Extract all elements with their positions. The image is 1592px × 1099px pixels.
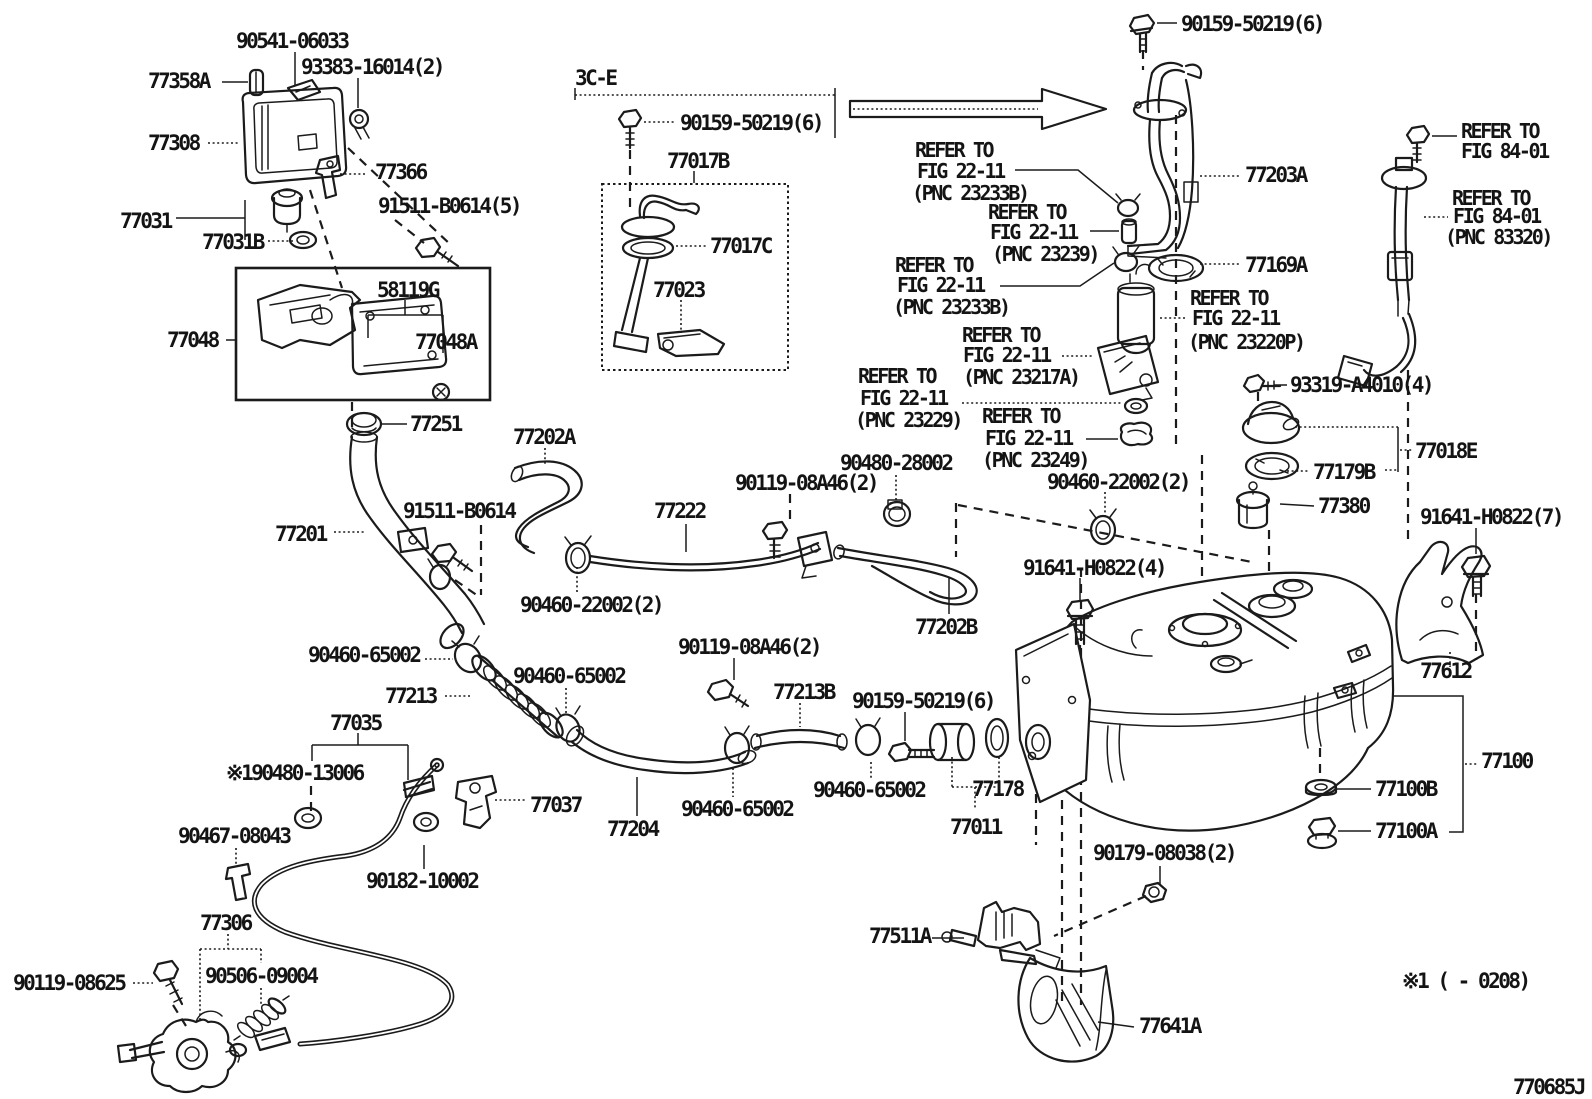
part-grommet-23229	[1125, 399, 1147, 413]
label-77213B: 77213B	[773, 680, 836, 704]
label-77018E: 77018E	[1415, 439, 1478, 463]
label-77048A: 77048A	[415, 330, 479, 354]
label-77366: 77366	[375, 160, 428, 184]
part-grommet-23249	[1121, 423, 1152, 445]
label-77031: 77031	[120, 209, 173, 233]
part-90179-nut	[1143, 883, 1166, 902]
part-77222-pipe	[590, 532, 832, 578]
label-77100B: 77100B	[1375, 777, 1438, 801]
label-77178: 77178	[972, 777, 1025, 801]
label-77511A: 77511A	[869, 924, 933, 948]
label-90460-65002-1: 90460-65002	[308, 643, 420, 667]
label-90182-10002: 90182-10002	[366, 869, 478, 893]
label-77017B: 77017B	[667, 149, 730, 173]
label-77179B: 77179B	[1313, 460, 1376, 484]
label-90460-65002-4: 90460-65002	[813, 778, 925, 802]
label-77201: 77201	[275, 522, 328, 546]
part-90159-bolt-top	[1130, 15, 1154, 52]
label-77641A: 77641A	[1139, 1014, 1203, 1038]
label-77204: 77204	[607, 817, 660, 841]
label-77612: 77612	[1420, 659, 1472, 683]
ref5-fig-22-11: FIG 22-11	[860, 386, 949, 410]
label-90541-06033: 90541-06033	[236, 29, 349, 53]
label-77251: 77251	[410, 412, 463, 436]
label-93319-A4010: 93319-A4010(4)	[1290, 373, 1432, 397]
label-90119-08A46-upper: 90119-08A46(2)	[735, 471, 877, 495]
label-77031B: 77031B	[202, 230, 265, 254]
label-90159-50219-bottom: 90159-50219(6)	[852, 689, 994, 713]
ref3-pnc-23233B: (PNC 23233B)	[893, 295, 1009, 319]
label-91641-H0822-4: 91641-H0822(4)	[1023, 556, 1165, 580]
label-77222: 77222	[654, 499, 706, 523]
label-section-3c-e: 3C-E	[575, 66, 617, 90]
part-90119-08625-bolt	[154, 961, 182, 1004]
label-91511-B0614-5: 91511-B0614(5)	[378, 194, 520, 218]
part-90119-bolt-upper	[763, 522, 787, 558]
label-77308: 77308	[148, 131, 201, 155]
label-90119-08A46-lower: 90119-08A46(2)	[678, 635, 820, 659]
label-90506-09004: 90506-09004	[205, 964, 318, 988]
group-box-77017B	[602, 184, 788, 370]
label-90119-08625: 90119-08625	[13, 971, 126, 995]
label-77213: 77213	[385, 684, 438, 708]
ref5-pnc-23229: (PNC 23229)	[855, 408, 961, 432]
ref2-pnc-23239: (PNC 23239)	[992, 242, 1098, 266]
label-90460-65002-2: 90460-65002	[513, 664, 625, 688]
ref6-fig-22-11: FIG 22-11	[985, 426, 1074, 450]
label-applicability-note: ※1 ( - 0208)	[1402, 969, 1529, 993]
direction-arrow	[850, 89, 1106, 129]
ref4-pnc-23217A: (PNC 23217A)	[963, 365, 1079, 389]
label-figure-code: 770685J	[1513, 1075, 1585, 1099]
part-77048-housing	[258, 285, 360, 348]
part-90460-65002-clamp-3	[725, 726, 749, 763]
label-90460-22002-right: 90460-22002(2)	[1047, 470, 1189, 494]
label-77023: 77023	[653, 278, 706, 302]
part-90119-bolt-lower	[708, 680, 748, 707]
ref2-fig-22-11: FIG 22-11	[990, 220, 1079, 244]
label-77011: 77011	[950, 815, 1003, 839]
label-77169A: 77169A	[1245, 253, 1309, 277]
part-90182-grommet	[414, 813, 438, 831]
label-77035: 77035	[330, 711, 383, 735]
part-fuel-pump-23220P	[1118, 264, 1154, 353]
part-77612-bracket	[1396, 542, 1483, 663]
label-77202A: 77202A	[513, 425, 577, 449]
leader-lines-dotted	[133, 95, 1478, 1020]
part-77017B-sender	[614, 110, 699, 352]
part-77213B-hose	[751, 730, 847, 750]
part-90480-13006-grommet	[295, 808, 321, 828]
label-77100: 77100	[1481, 749, 1534, 773]
part-90460-65002-clamp-4	[856, 718, 880, 755]
part-77178-seal-set	[930, 719, 1008, 760]
label-77048: 77048	[167, 328, 220, 352]
label-77358A: 77358A	[148, 69, 212, 93]
part-90460-22002-clamp-left	[565, 536, 591, 573]
label-77306: 77306	[200, 911, 253, 935]
label-90480-13006: ※190480-13006	[226, 761, 365, 785]
label-77037: 77037	[530, 793, 583, 817]
part-90460-22002-clamp-right	[1090, 509, 1116, 544]
ref6-pnc-23249: (PNC 23249)	[982, 448, 1088, 472]
ref4-fig-22-11: FIG 22-11	[963, 343, 1052, 367]
ref-fig84b-pnc-83320: (PNC 83320)	[1445, 225, 1551, 249]
part-90480-28002-clamp	[884, 500, 910, 526]
label-77380: 77380	[1318, 494, 1371, 518]
part-91641-7-bolt	[1462, 556, 1490, 596]
part-77380-grommet	[1237, 482, 1269, 528]
part-77306-lock	[118, 1011, 239, 1092]
label-93383-16014: 93383-16014(2)	[301, 55, 443, 79]
part-fig84-bolt	[1407, 126, 1429, 162]
label-90179-08038: 90179-08038(2)	[1093, 841, 1235, 865]
label-90460-22002-left: 90460-22002(2)	[520, 593, 662, 617]
part-clamp-23233B-1	[1116, 194, 1140, 216]
label-90460-65002-3: 90460-65002	[681, 797, 793, 821]
part-bracket-23217A	[1098, 336, 1158, 400]
part-77204-hose	[563, 723, 758, 773]
ref7-pnc-23220P: (PNC 23220P)	[1188, 330, 1304, 354]
part-77201-filler-pipe	[350, 432, 484, 652]
label-91641-H0822-7: 91641-H0822(7)	[1420, 505, 1562, 529]
part-77018E-cap	[1243, 402, 1300, 443]
ref6-refer-to: REFER TO	[982, 404, 1061, 428]
part-77023-float	[658, 330, 724, 356]
label-77017C: 77017C	[710, 234, 773, 258]
ref3-fig-22-11: FIG 22-11	[897, 273, 986, 297]
part-93383-screw	[350, 110, 369, 139]
ref1-fig-22-11: FIG 22-11	[917, 159, 1006, 183]
part-77031-valve	[272, 189, 302, 232]
label-77203A: 77203A	[1245, 163, 1309, 187]
part-90159-bolt-bottom	[889, 743, 934, 761]
part-77202A-hose	[509, 461, 582, 553]
fuel-tank-parts-diagram: 90541-06033 77358A 93383-16014(2) 77308 …	[0, 0, 1592, 1099]
label-90159-50219-top: 90159-50219(6)	[1181, 12, 1323, 36]
part-77179B-gasket	[1246, 453, 1298, 479]
label-77202B: 77202B	[915, 615, 978, 639]
part-77511A-bracket	[942, 902, 1040, 964]
part-tube-23239	[1122, 219, 1136, 243]
part-fig84-sender	[1338, 158, 1426, 386]
part-77031B-grommet	[290, 232, 316, 248]
part-77641A-shield	[1018, 950, 1113, 1062]
part-77308-door	[243, 88, 347, 183]
ref-fig84a-fig-84-01: FIG 84-01	[1461, 139, 1550, 163]
label-91511-B0614: 91511-B0614	[403, 499, 516, 523]
part-77203A-pipes	[1128, 63, 1201, 258]
part-clamp-23233B-2	[1113, 246, 1139, 271]
ref5-refer-to: REFER TO	[858, 364, 937, 388]
part-77100A-bolt	[1308, 818, 1336, 848]
label-58119G: 58119G	[377, 278, 440, 302]
label-77100A: 77100A	[1375, 819, 1439, 843]
part-77037-bracket	[456, 776, 496, 828]
label-90159-50219-center: 90159-50219(6)	[680, 111, 822, 135]
ref7-fig-22-11: FIG 22-11	[1192, 306, 1281, 330]
label-90467-08043: 90467-08043	[178, 824, 291, 848]
part-93319-bolt	[1244, 375, 1280, 392]
part-90467-clip	[226, 864, 250, 900]
